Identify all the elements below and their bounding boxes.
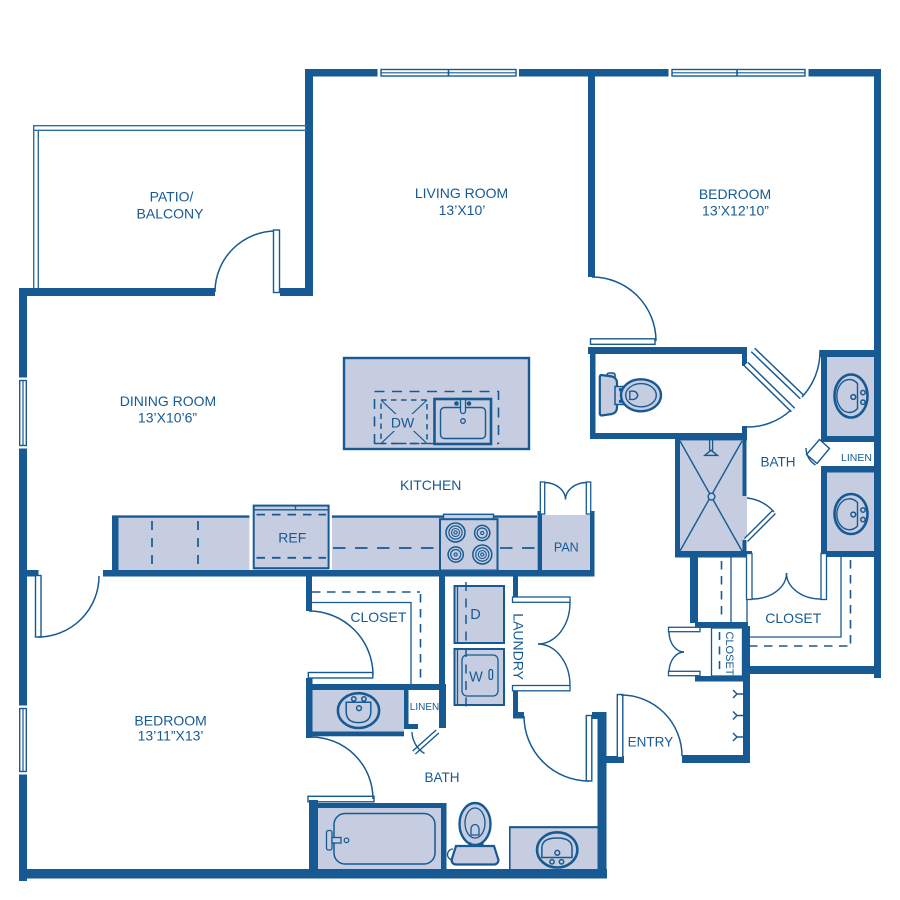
svg-text:W: W: [469, 670, 483, 686]
svg-text:BALCONY: BALCONY: [137, 205, 205, 221]
svg-text:CLOSET: CLOSET: [350, 609, 406, 625]
svg-text:KITCHEN: KITCHEN: [400, 477, 461, 493]
svg-text:13’X12’10”: 13’X12’10”: [702, 203, 769, 219]
svg-text:LINEN: LINEN: [410, 702, 439, 713]
svg-text:PAN: PAN: [554, 541, 579, 555]
svg-text:CLOSET: CLOSET: [765, 610, 821, 626]
svg-text:13’11”X13’: 13’11”X13’: [138, 727, 204, 743]
svg-text:LIVING ROOM: LIVING ROOM: [415, 185, 508, 201]
svg-text:DINING ROOM: DINING ROOM: [120, 393, 216, 409]
svg-text:13’X10’: 13’X10’: [439, 202, 486, 218]
svg-text:ENTRY: ENTRY: [628, 734, 674, 749]
svg-text:BATH: BATH: [760, 455, 795, 470]
svg-text:LAUNDRY: LAUNDRY: [511, 613, 527, 680]
svg-text:PATIO/: PATIO/: [150, 189, 194, 205]
svg-text:DW: DW: [391, 415, 415, 431]
svg-text:REF: REF: [278, 530, 306, 546]
svg-text:BEDROOM: BEDROOM: [699, 186, 771, 202]
svg-text:LINEN: LINEN: [841, 452, 872, 464]
svg-text:BEDROOM: BEDROOM: [134, 712, 206, 728]
svg-text:D: D: [470, 607, 480, 623]
svg-text:BATH: BATH: [424, 770, 459, 785]
svg-text:13’X10’6”: 13’X10’6”: [138, 409, 197, 425]
svg-text:CLOSET: CLOSET: [723, 632, 735, 676]
